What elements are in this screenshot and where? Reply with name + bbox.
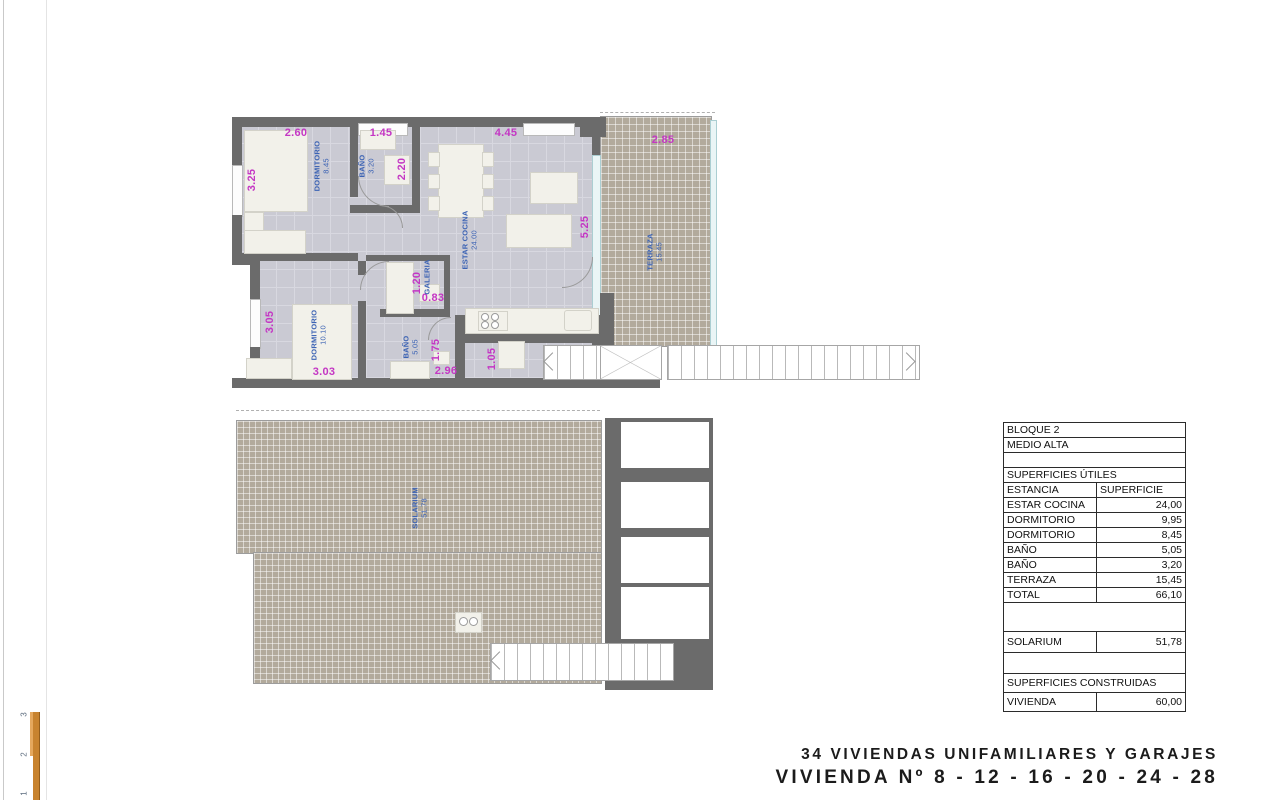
scale-tick-label: 2 (20, 752, 29, 756)
table-row: DORMITORIO8,45 (1004, 528, 1185, 543)
room-label-dormitorio-2: DORMITORIO10.10 (310, 310, 329, 361)
table-row (1004, 603, 1185, 632)
wall (232, 215, 242, 255)
furniture-chair (428, 152, 440, 167)
room-label-terraza: TERRAZA15.45 (646, 233, 665, 270)
table-row: ESTAR COCINA24,00 (1004, 498, 1185, 513)
wall (366, 255, 450, 261)
page-edge-line (3, 0, 4, 800)
terrace-floor (600, 116, 712, 347)
dimension-label: 1.05 (486, 348, 498, 371)
wall (600, 293, 614, 345)
table-row (1004, 653, 1185, 674)
scale-tick-label: 1 (20, 791, 29, 795)
furniture-nightstand (244, 212, 264, 232)
furniture-wardrobe (246, 358, 292, 379)
dimension-label: 5.25 (579, 216, 591, 239)
wall (465, 333, 600, 343)
scale-tick-label: 3 (20, 712, 29, 716)
stove-burner (481, 321, 489, 329)
table-row: TOTAL66,10 (1004, 588, 1185, 603)
furniture-sofa (506, 214, 572, 248)
dimension-label: 1.20 (411, 272, 423, 295)
stove-burner (481, 313, 489, 321)
dwelling-numbers-title: VIVIENDA Nº 8 - 12 - 16 - 20 - 24 - 28 (775, 767, 1218, 789)
room-label-dormitorio-1: DORMITORIO8.45 (313, 141, 332, 192)
dimension-label: 2.85 (652, 134, 675, 146)
page-fold-line (46, 0, 47, 800)
room-label-bano-1: BAÑO3.20 (358, 155, 377, 178)
solarium-plan (228, 410, 730, 695)
dimension-label: 1.45 (370, 127, 393, 139)
table-row: SOLARIUM51,78 (1004, 632, 1185, 653)
table-row (1004, 453, 1185, 468)
dimension-label: 2.20 (396, 158, 408, 181)
dimension-label: 3.25 (246, 169, 258, 192)
roof-opening (621, 587, 709, 639)
furniture-wardrobe (386, 262, 414, 314)
table-header-row: ESTANCIASUPERFICIE (1004, 483, 1185, 498)
roof-opening (621, 482, 709, 528)
dimension-label: 2.60 (285, 127, 308, 139)
graphic-scale-bar (33, 712, 40, 800)
window (523, 123, 575, 136)
wall (240, 253, 358, 261)
dimension-label: 1.75 (430, 339, 442, 362)
kitchen-sink (564, 310, 592, 331)
table-row: BAÑO3,20 (1004, 558, 1185, 573)
room-label-estar-cocina: ESTAR COCINA24.00 (461, 211, 480, 270)
upper-floor-plan (232, 110, 922, 395)
wall (250, 265, 260, 299)
surfaces-table: BLOQUE 2 MEDIO ALTA SUPERFICIES ÚTILES E… (1003, 422, 1186, 712)
stair-landing (600, 345, 662, 380)
staircase (667, 345, 920, 380)
dimension-label: 3.05 (264, 311, 276, 334)
table-row: VIVIENDA60,00 (1004, 693, 1185, 711)
terrace-boundary-dashed (600, 112, 715, 113)
wall (358, 301, 366, 378)
furniture-chair (428, 174, 440, 189)
table-row: TERRAZA15,45 (1004, 573, 1185, 588)
furniture-cabinet (498, 341, 525, 369)
dimension-label: 3.03 (313, 366, 336, 378)
table-row: BLOQUE 2 (1004, 423, 1185, 438)
roof-opening (621, 537, 709, 583)
room-label-galeria: GALERIA (422, 259, 431, 294)
wall (592, 127, 600, 155)
furniture-wardrobe (244, 230, 306, 254)
window (250, 299, 261, 349)
window (232, 165, 243, 217)
roof-opening (621, 422, 709, 468)
wall (444, 255, 450, 315)
terrace-railing (710, 120, 717, 346)
furniture-chair (482, 174, 494, 189)
furniture-chair (482, 152, 494, 167)
project-title: 34 VIVIENDAS UNIFAMILIARES Y GARAJES (775, 746, 1218, 764)
room-label-bano-2: BAÑO5.05 (402, 336, 421, 359)
dimension-label: 2.96 (435, 365, 458, 377)
table-row: SUPERFICIES ÚTILES (1004, 468, 1185, 483)
skylight-dome (459, 617, 468, 626)
scale-bar-segment (30, 712, 33, 756)
bathroom-bathtub (390, 361, 430, 379)
furniture-chair (428, 196, 440, 211)
table-row: MEDIO ALTA (1004, 438, 1185, 453)
table-row: BAÑO5,05 (1004, 543, 1185, 558)
room-label-solarium: SOLARIUM51.78 (411, 487, 430, 529)
stove-burner (491, 313, 499, 321)
roof-boundary-dashed (236, 410, 600, 411)
furniture-tv-table (530, 172, 578, 204)
staircase (490, 643, 674, 681)
stove-burner (491, 321, 499, 329)
dimension-label: 4.45 (495, 127, 518, 139)
drawing-sheet: 2.60 1.45 4.45 2.85 3.25 2.20 5.25 1.20 … (0, 0, 1280, 800)
wall (412, 127, 420, 212)
furniture-chair (482, 196, 494, 211)
skylight-dome (469, 617, 478, 626)
table-row: DORMITORIO9,95 (1004, 513, 1185, 528)
wall (232, 117, 242, 165)
table-row: SUPERFICIES CONSTRUIDAS (1004, 674, 1185, 693)
furniture-dining-table (438, 144, 484, 218)
title-block: 34 VIVIENDAS UNIFAMILIARES Y GARAJES VIV… (775, 746, 1218, 789)
